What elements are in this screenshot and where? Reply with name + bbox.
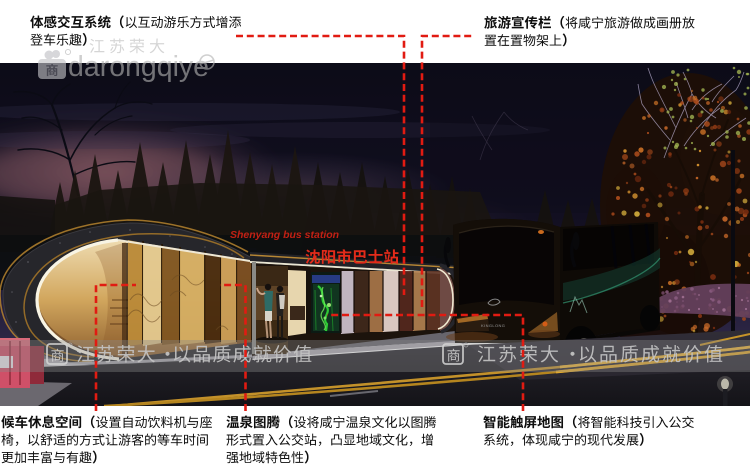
svg-text:Shenyang bus station: Shenyang bus station	[230, 229, 339, 241]
svg-text:KINGLONG: KINGLONG	[481, 323, 505, 328]
svg-text:darongqiye: darongqiye	[68, 51, 209, 83]
